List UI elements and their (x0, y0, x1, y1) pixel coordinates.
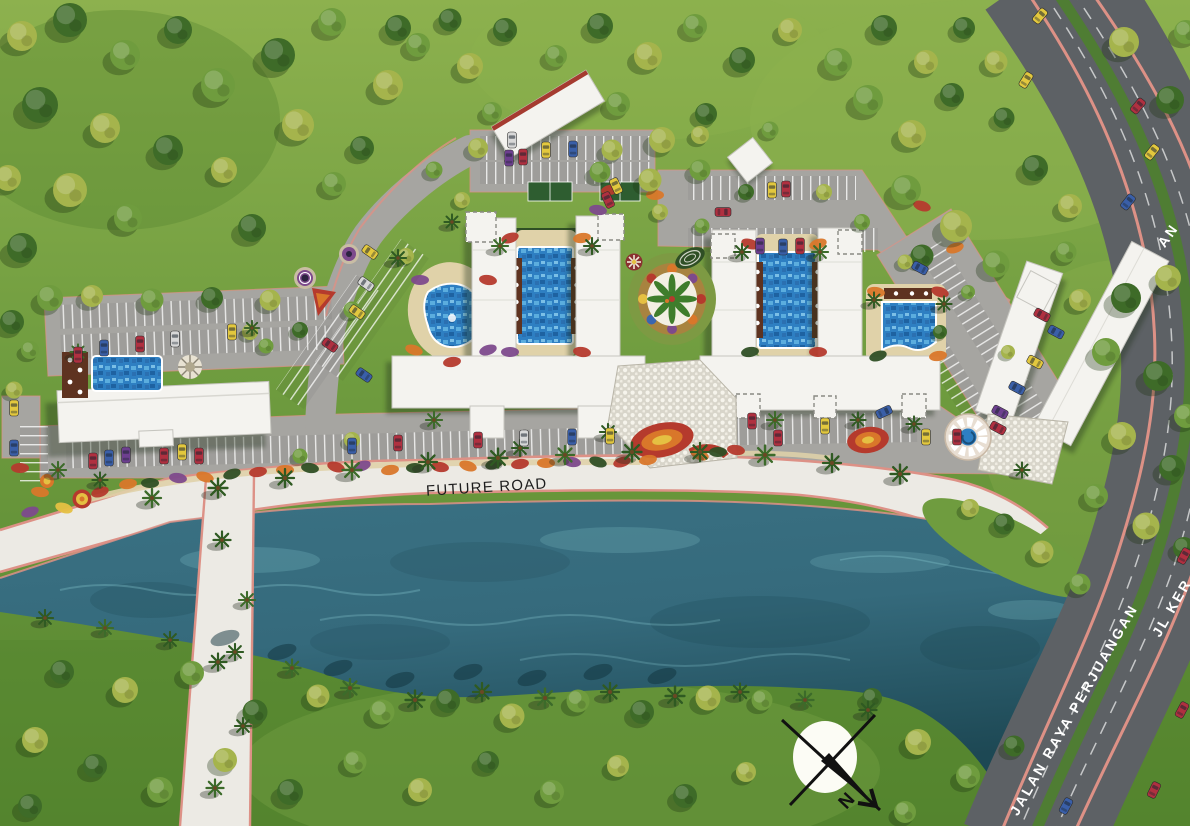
pool-2 (758, 252, 816, 348)
pool-fountain (448, 314, 456, 322)
fountain-plaza (945, 414, 991, 460)
site-plan: FUTURE ROAD JALAN RAYA PERJUANGAN JL KER… (0, 0, 1190, 826)
central-garden (628, 253, 716, 345)
pool-3 (882, 302, 936, 350)
pool-1 (517, 247, 573, 344)
site-plan-canvas: FUTURE ROAD JALAN RAYA PERJUANGAN JL KER… (0, 0, 1190, 826)
west-pool (92, 356, 162, 391)
rosette-garden (626, 254, 643, 271)
